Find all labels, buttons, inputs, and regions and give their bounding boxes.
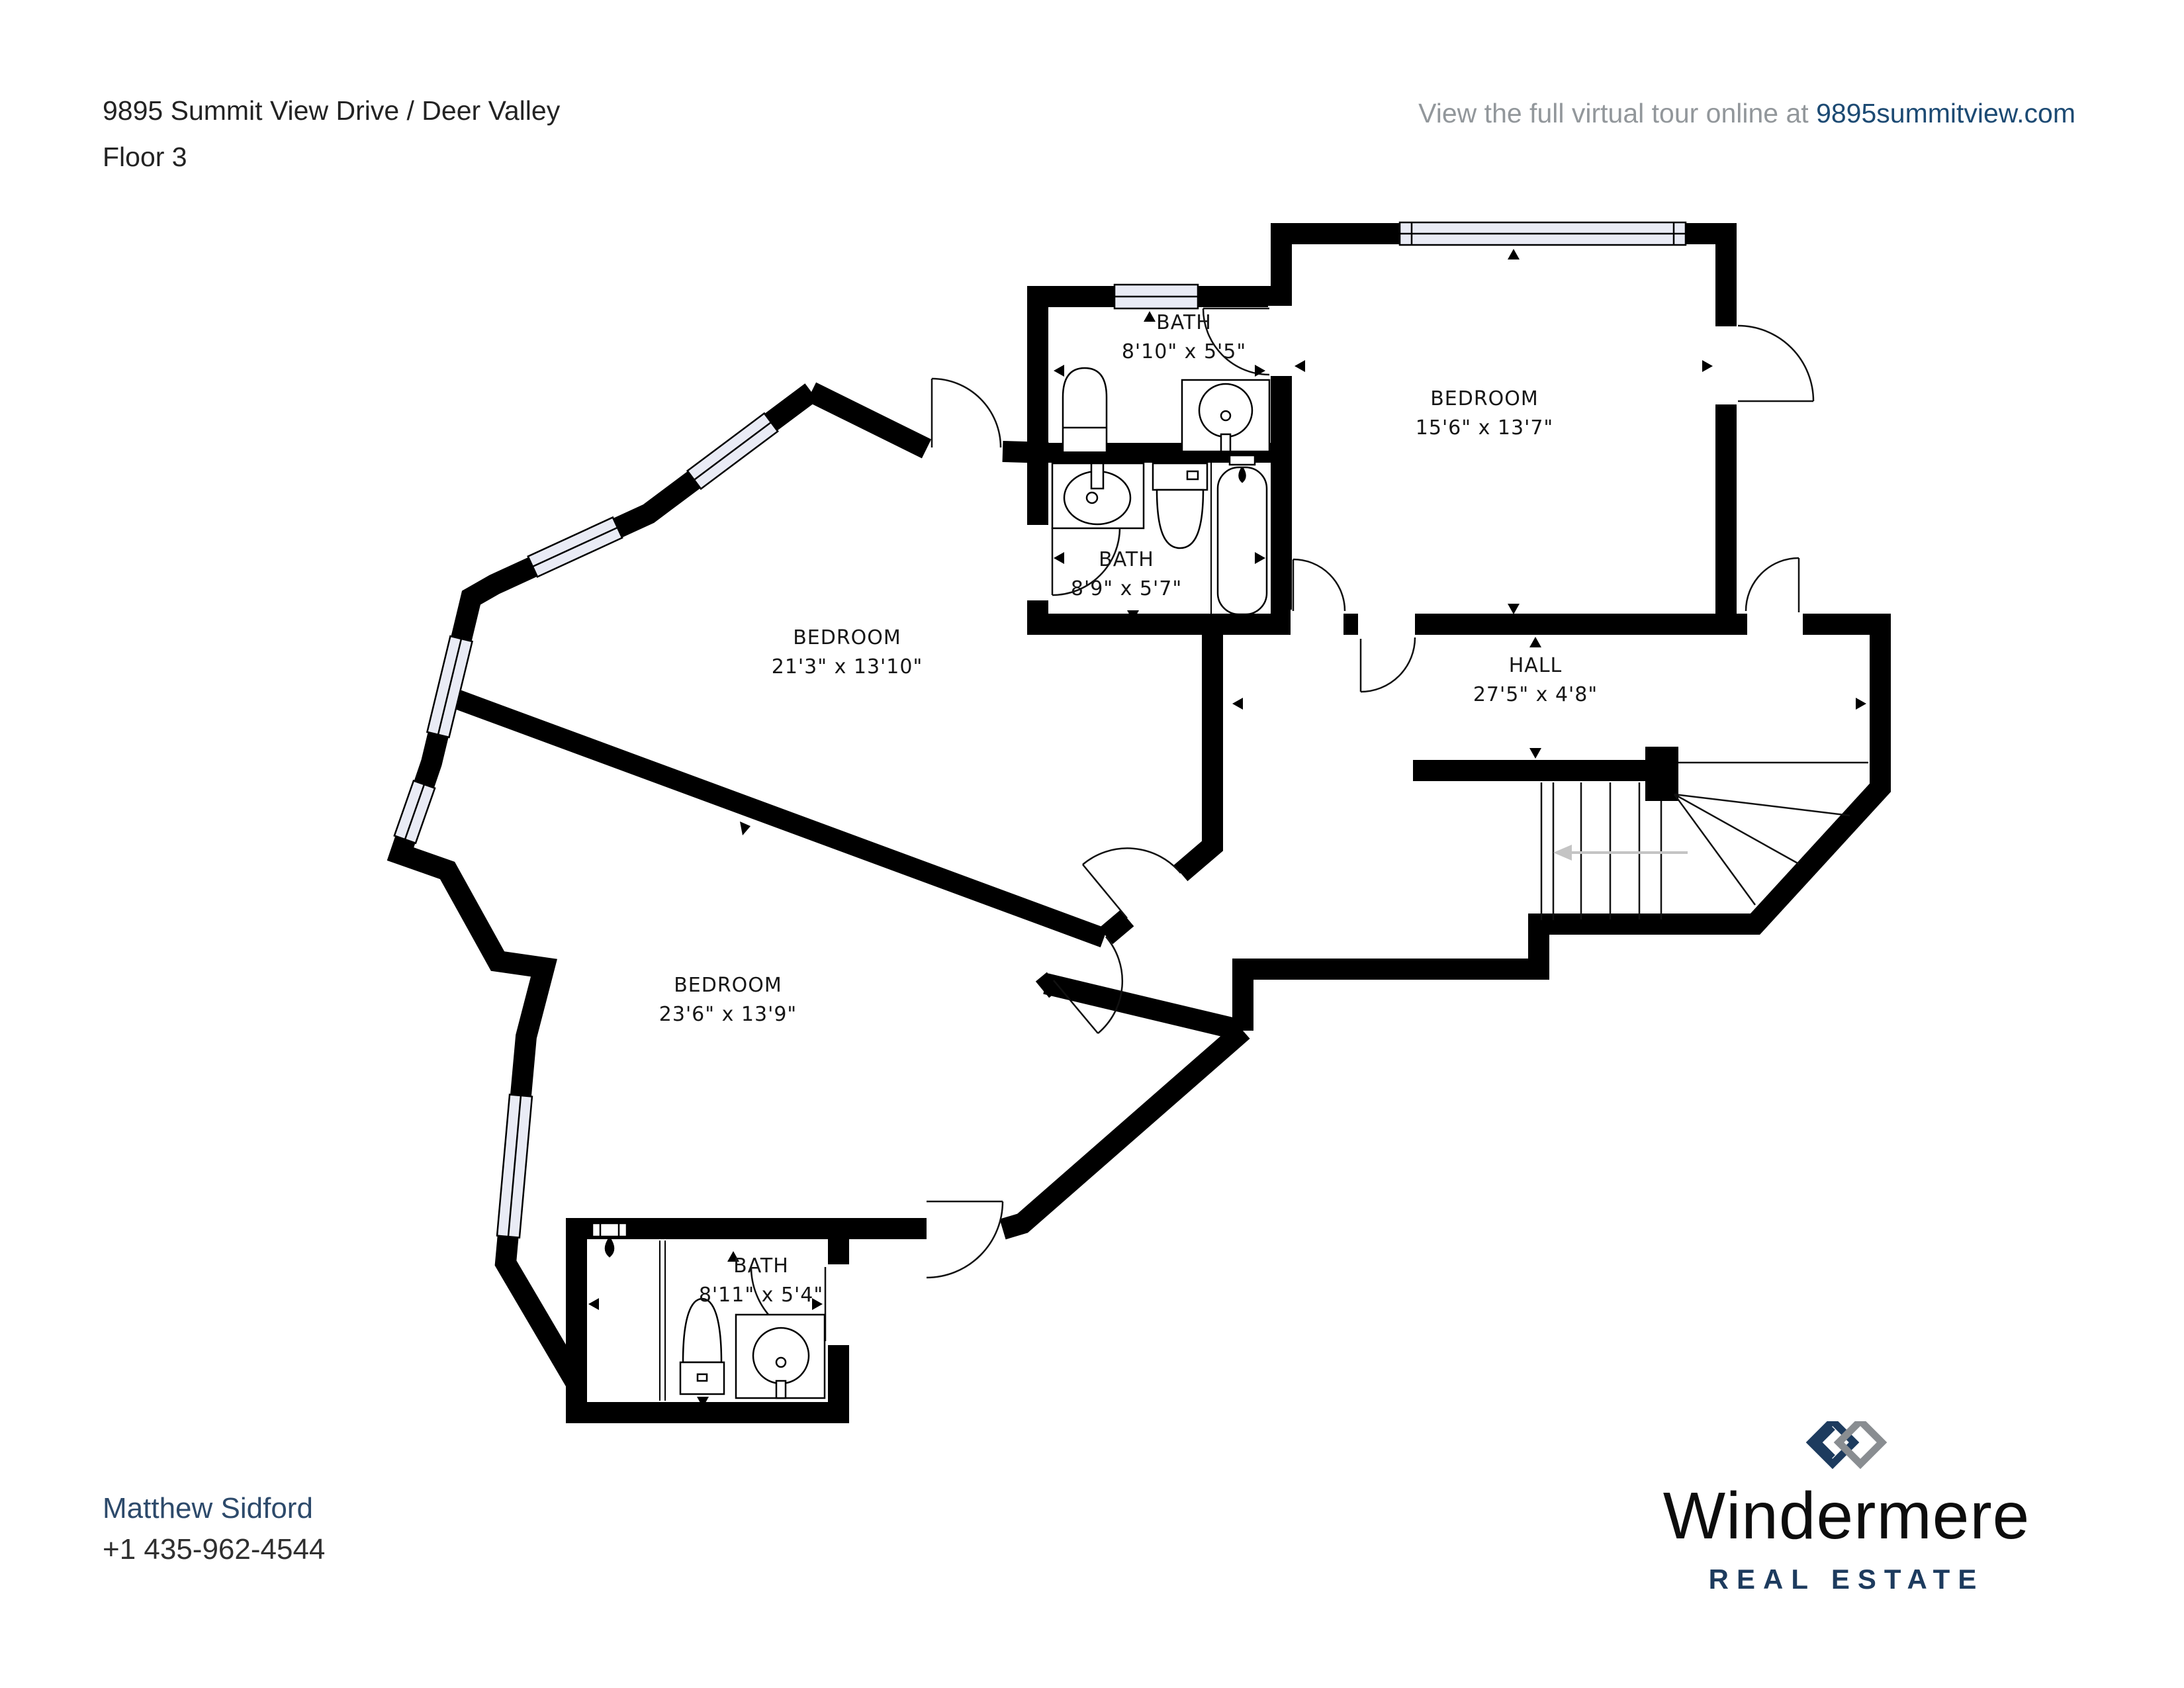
room-dims-bedroom-middle: 21'3" x 13'10" [772,655,923,679]
door-arc [1083,848,1181,918]
stair-direction-arrow [1553,845,1688,861]
toilet-icon [1063,368,1107,451]
sink-icon [736,1315,825,1398]
windermere-mark-icon [1803,1421,1890,1474]
agent-name: Matthew Sidford [103,1488,325,1529]
room-dims-bedroom-ne: 15'6" x 13'7" [1416,416,1553,440]
brand-logo: Windermere REAL ESTATE [1615,1421,2078,1595]
door-arc [927,1201,1003,1278]
room-label-bedroom-ne: BEDROOM [1430,387,1539,410]
window-icon [688,413,778,489]
room-label-bedroom-sw: BEDROOM [674,974,782,997]
brand-name: Windermere [1615,1478,2078,1554]
window-icon [497,1094,532,1237]
bathtub-icon [1218,455,1267,614]
room-dims-hall: 27'5" x 4'8" [1473,683,1598,706]
window-icon [394,780,435,843]
sink-icon [1052,463,1144,528]
room-label-bath-bottom: BATH [733,1254,789,1278]
walls [400,234,1891,1423]
room-dims-bath-middle: 8'9" x 5'7" [1071,577,1182,600]
agent-info: Matthew Sidford +1 435-962-4544 [103,1488,325,1570]
toilet-icon [680,1299,724,1394]
window-icon [1400,222,1686,245]
floorplan-page: 9895 Summit View Drive / Deer Valley Flo… [0,0,2184,1688]
room-dims-bedroom-sw: 23'6" x 13'9" [659,1003,797,1026]
window-icon [1115,285,1198,308]
room-label-hall: HALL [1509,654,1563,677]
stair-newel-post [1645,747,1678,801]
room-label-bedroom-middle: BEDROOM [793,626,901,649]
door-arc [932,379,1001,447]
door-arc [1293,559,1345,611]
window-icon [427,636,472,737]
window-icon [528,518,622,577]
brand-tagline: REAL ESTATE [1615,1564,2078,1595]
agent-phone: +1 435-962-4544 [103,1529,325,1570]
toilet-icon [1153,463,1207,548]
shower-icon [592,1223,665,1401]
door-arc [1738,326,1813,401]
room-dims-bath-bottom: 8'11" x 5'4" [699,1284,823,1307]
door-arc [1746,558,1799,612]
sink-icon [1182,380,1269,451]
door-gaps [824,306,1803,1345]
room-label-bath-top: BATH [1156,311,1212,334]
door-arc [1361,637,1415,692]
room-label-bath-middle: BATH [1099,548,1154,571]
room-dims-bath-top: 8'10" x 5'5" [1122,340,1246,363]
